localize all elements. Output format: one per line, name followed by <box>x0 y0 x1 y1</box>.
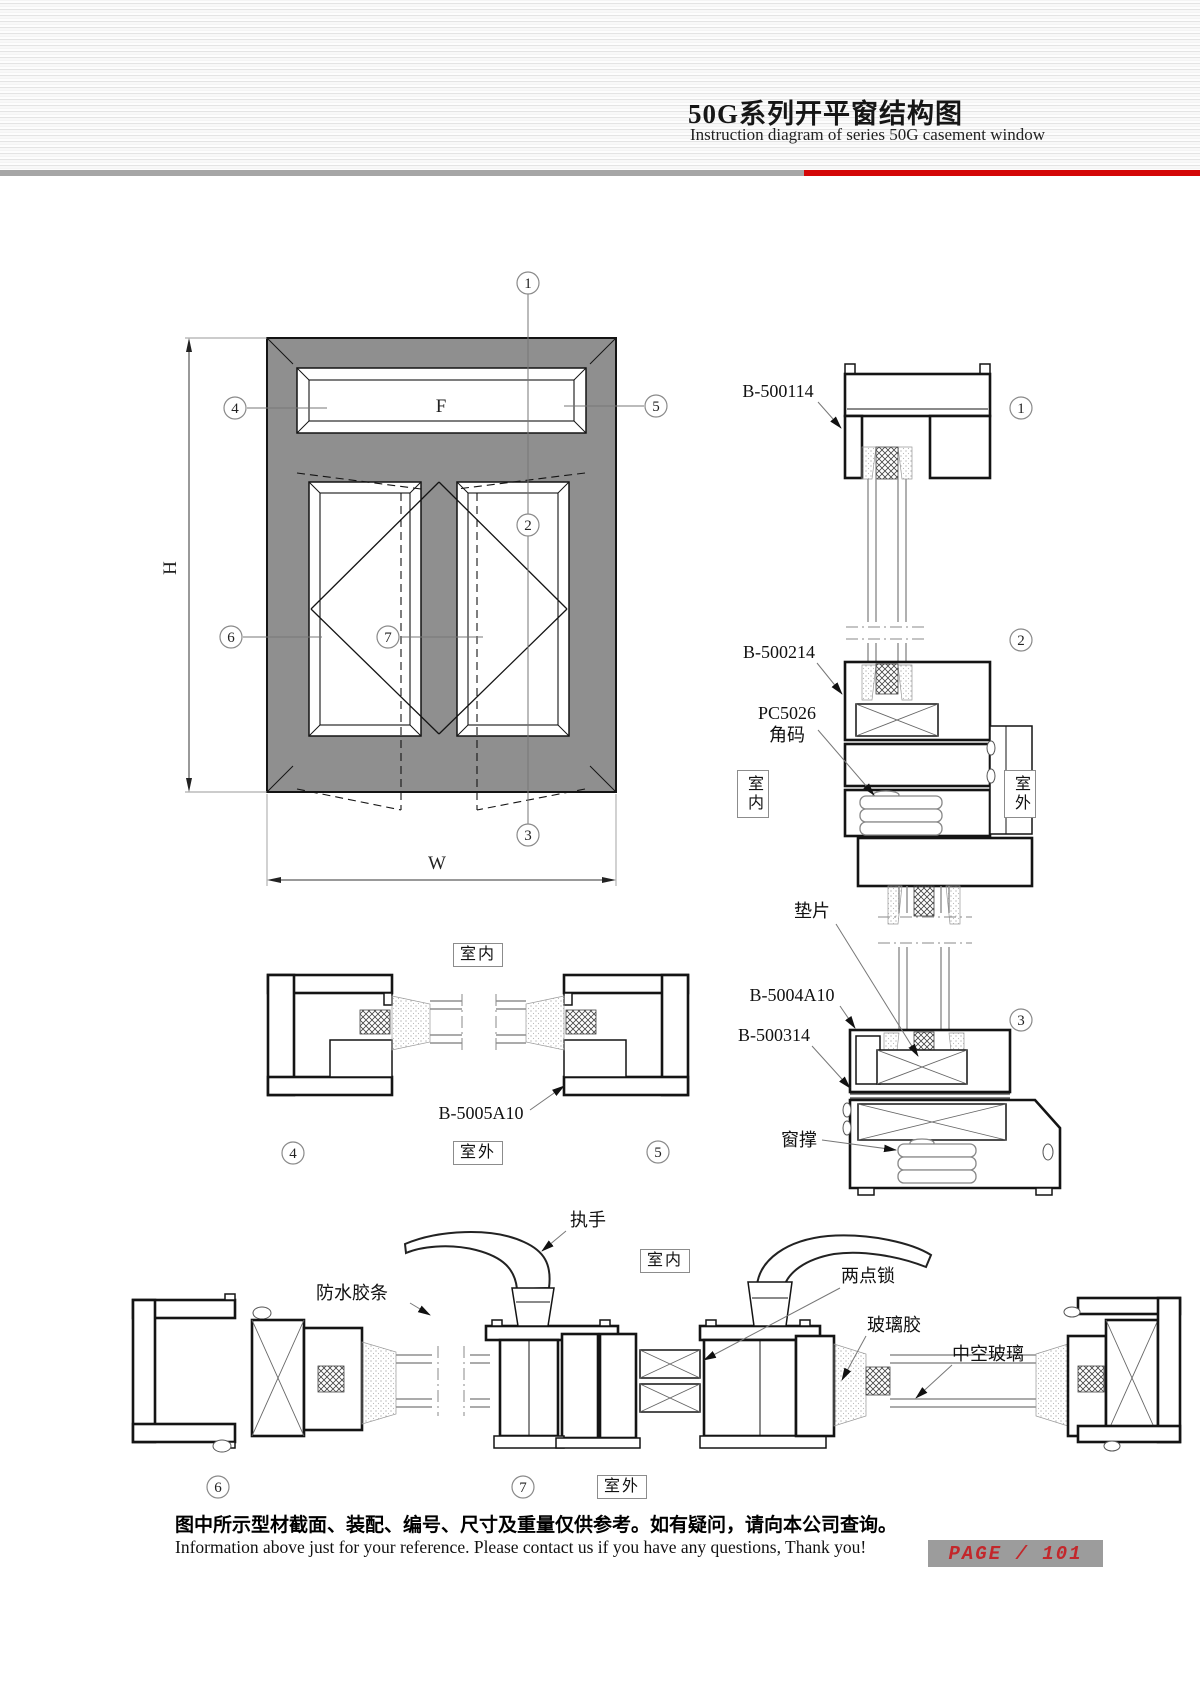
label-b5004a10: B-5004A10 <box>750 985 835 1005</box>
callout-1: 1 <box>517 272 539 294</box>
sash-jamb-left <box>252 1320 396 1436</box>
indoor-box-bottom: 室内 <box>640 1249 690 1273</box>
label-dianpian: 垫片 <box>794 901 830 921</box>
svg-text:3: 3 <box>1017 1013 1025 1029</box>
callout-3: 3 <box>517 824 539 846</box>
label-fangshui: 防水胶条 <box>316 1283 388 1303</box>
callout-section-1: 1 <box>1010 397 1032 419</box>
outdoor-box-bottom: 室外 <box>597 1475 647 1499</box>
svg-text:4: 4 <box>231 401 239 417</box>
technical-drawing: F <box>0 0 1200 1697</box>
glass-unit-upper <box>846 479 928 662</box>
label-b500214: B-500214 <box>743 642 815 662</box>
elevation-view: F <box>160 272 667 886</box>
page-number-badge: PAGE / 101 <box>928 1540 1103 1567</box>
callout-section-7: 7 <box>512 1476 534 1498</box>
frame-jamb-left <box>133 1294 271 1452</box>
horizontal-section-4-5: B-5005A10 4 5 <box>268 975 688 1164</box>
label-bolijiao: 玻璃胶 <box>867 1315 921 1335</box>
dimension-height: H <box>160 338 267 792</box>
svg-text:5: 5 <box>654 1145 662 1161</box>
svg-text:2: 2 <box>1017 633 1025 649</box>
right-sash <box>457 482 569 736</box>
footer-note-zh: 图中所示型材截面、装配、编号、尺寸及重量仅供参考。如有疑问，请向本公司查询。 <box>175 1510 897 1537</box>
svg-text:7: 7 <box>519 1480 527 1496</box>
svg-text:2: 2 <box>524 518 532 534</box>
svg-text:3: 3 <box>524 828 532 844</box>
handle-right <box>748 1235 931 1326</box>
label-b500314: B-500314 <box>738 1025 810 1045</box>
fixed-panel-label: F <box>436 396 447 417</box>
label-b5005a10: B-5005A10 <box>439 1103 524 1123</box>
svg-text:4: 4 <box>289 1146 297 1162</box>
outdoor-box-vertical: 室外 <box>1004 770 1036 818</box>
label-zhishou: 执手 <box>570 1210 606 1230</box>
dim-w-label: W <box>428 853 446 874</box>
sash-jamb-right <box>1036 1320 1158 1436</box>
left-sash <box>309 482 421 736</box>
footer-note-en: Information above just for your referenc… <box>175 1537 866 1558</box>
dim-h-label: H <box>160 561 181 575</box>
label-liangdiansuo: 两点锁 <box>841 1266 895 1286</box>
right-jamb-profile <box>526 975 688 1095</box>
svg-text:5: 5 <box>652 399 660 415</box>
callout-4: 4 <box>224 397 246 419</box>
label-b500114: B-500114 <box>742 381 813 401</box>
callout-section-2: 2 <box>1010 629 1032 651</box>
svg-text:6: 6 <box>227 630 235 646</box>
indoor-box-vertical: 室内 <box>737 770 769 818</box>
label-chuangcheng: 窗撑 <box>781 1130 817 1150</box>
meeting-stiles-assembly <box>486 1320 890 1448</box>
svg-text:1: 1 <box>1017 401 1025 417</box>
callout-5: 5 <box>645 395 667 417</box>
fixed-panel: F <box>297 368 586 433</box>
outdoor-box-mid: 室外 <box>453 1141 503 1165</box>
callout-2: 2 <box>517 514 539 536</box>
sill-section-profile <box>843 1030 1060 1195</box>
catalog-page: 50G系列开平窗结构图 Instruction diagram of serie… <box>0 0 1200 1697</box>
svg-text:6: 6 <box>214 1480 222 1496</box>
callout-7: 7 <box>377 626 399 648</box>
callout-section-4: 4 <box>282 1142 304 1164</box>
callout-section-5: 5 <box>647 1141 669 1163</box>
left-jamb-profile <box>268 975 430 1095</box>
svg-text:7: 7 <box>384 630 392 646</box>
label-jiaoma: 角码 <box>769 725 805 745</box>
head-section-profile <box>845 364 990 479</box>
svg-text:1: 1 <box>524 276 532 292</box>
callout-section-6: 6 <box>207 1476 229 1498</box>
dimension-width: W <box>267 794 616 886</box>
weatherstrip-spring <box>860 791 942 835</box>
label-pc5026: PC5026 <box>758 703 816 723</box>
indoor-box-mid: 室内 <box>453 943 503 967</box>
glass-unit-horizontal <box>430 994 526 1050</box>
callout-section-3: 3 <box>1010 1009 1032 1031</box>
label-zhongkongboli: 中空玻璃 <box>952 1344 1024 1364</box>
callout-6: 6 <box>220 626 242 648</box>
handle-left <box>405 1232 554 1326</box>
two-point-lock <box>640 1350 700 1412</box>
window-stay-spring <box>898 1139 976 1183</box>
glass-left-run <box>396 1346 490 1416</box>
